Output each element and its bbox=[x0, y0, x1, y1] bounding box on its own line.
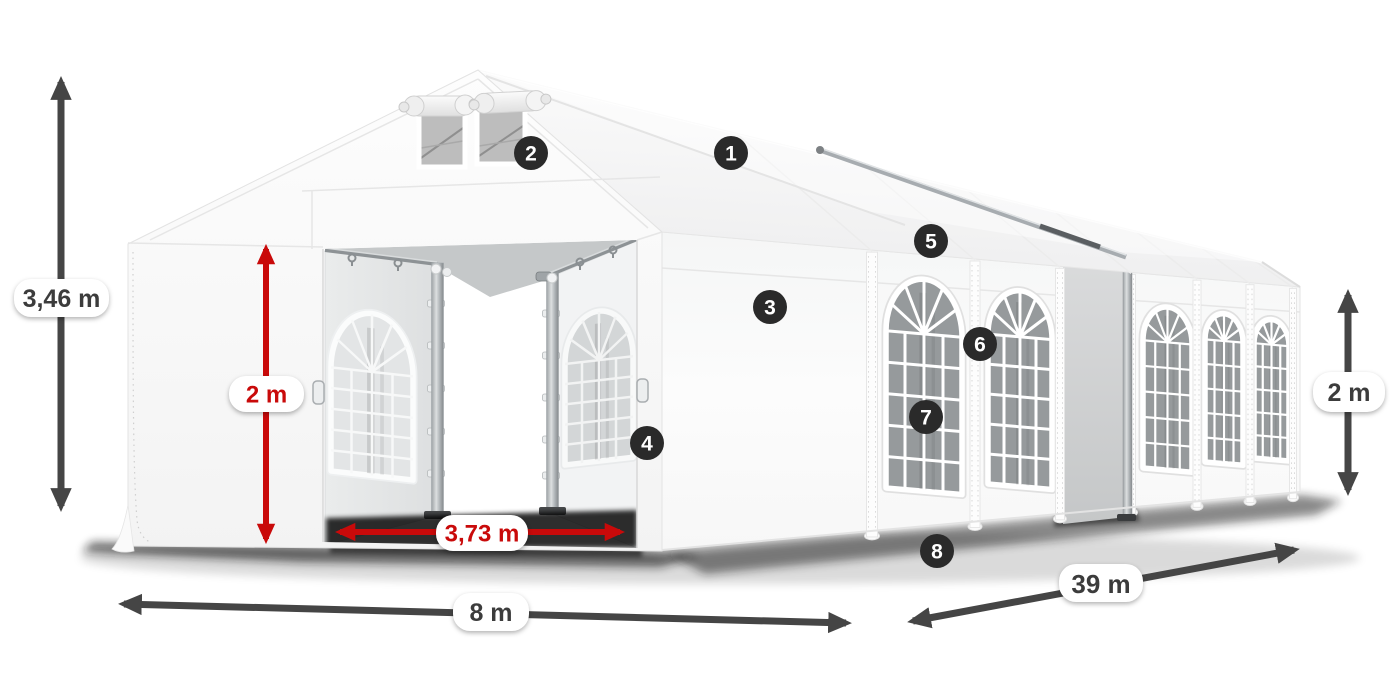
wall-strap bbox=[1193, 280, 1201, 507]
side-height-label: 2 m bbox=[1313, 372, 1385, 412]
vent-roll-left bbox=[399, 95, 479, 116]
dimension-total-height: 3,46 m bbox=[14, 82, 109, 506]
svg-text:7: 7 bbox=[920, 407, 932, 430]
wall-strap bbox=[1246, 285, 1254, 503]
side-window-3 bbox=[1143, 305, 1192, 472]
callout-7[interactable]: 7 bbox=[909, 400, 943, 434]
callout-6[interactable]: 6 bbox=[963, 327, 997, 361]
dimension-ground-width: 8 m bbox=[124, 593, 846, 631]
svg-text:6: 6 bbox=[974, 334, 986, 357]
svg-text:5: 5 bbox=[925, 231, 937, 254]
door-handle-left bbox=[313, 381, 324, 404]
svg-text:8: 8 bbox=[931, 541, 943, 564]
door-window-right bbox=[565, 307, 633, 465]
callout-2[interactable]: 2 bbox=[514, 136, 548, 170]
entrance-opening bbox=[323, 237, 637, 548]
wall-strap bbox=[1056, 268, 1065, 520]
svg-text:2 m: 2 m bbox=[1327, 379, 1370, 407]
callout-1[interactable]: 1 bbox=[714, 136, 748, 170]
side-window-5 bbox=[1254, 318, 1289, 461]
side-window-1 bbox=[886, 276, 962, 495]
svg-text:39 m: 39 m bbox=[1071, 569, 1130, 599]
callout-8[interactable]: 8 bbox=[920, 534, 954, 568]
side-window-2 bbox=[988, 288, 1052, 490]
svg-text:3,46 m: 3,46 m bbox=[23, 285, 101, 313]
svg-text:4: 4 bbox=[641, 433, 653, 456]
ground-width-label: 8 m bbox=[453, 593, 529, 631]
svg-text:2: 2 bbox=[525, 143, 537, 166]
entrance-width-label: 3,73 m bbox=[436, 515, 528, 551]
svg-text:1: 1 bbox=[725, 143, 737, 166]
callout-3[interactable]: 3 bbox=[753, 290, 787, 324]
wall-strap bbox=[1290, 288, 1297, 498]
total-height-label: 3,46 m bbox=[14, 279, 109, 317]
side-window-4 bbox=[1205, 312, 1243, 465]
svg-text:3,73 m: 3,73 m bbox=[445, 521, 520, 548]
side-wall bbox=[662, 232, 1300, 550]
svg-text:2 m: 2 m bbox=[246, 382, 287, 409]
dimension-side-height: 2 m bbox=[1313, 295, 1385, 490]
svg-text:3: 3 bbox=[764, 297, 776, 320]
gable-vent-left bbox=[419, 110, 465, 167]
wall-strap bbox=[867, 252, 878, 537]
entrance-height-label: 2 m bbox=[229, 376, 304, 412]
svg-text:8 m: 8 m bbox=[469, 599, 512, 627]
tent-diagram-canvas: 3,46 m 2 m 3,73 m 8 m 39 m bbox=[0, 0, 1400, 700]
vent-roll-right bbox=[469, 90, 552, 114]
callout-5[interactable]: 5 bbox=[914, 224, 948, 258]
door-handle-right bbox=[637, 379, 648, 402]
door-window-left bbox=[331, 309, 413, 480]
length-label: 39 m bbox=[1059, 564, 1143, 602]
tent-dimension-diagram: 3,46 m 2 m 3,73 m 8 m 39 m bbox=[0, 0, 1400, 700]
callout-4[interactable]: 4 bbox=[630, 426, 664, 460]
side-doorway-opening bbox=[1063, 257, 1127, 524]
